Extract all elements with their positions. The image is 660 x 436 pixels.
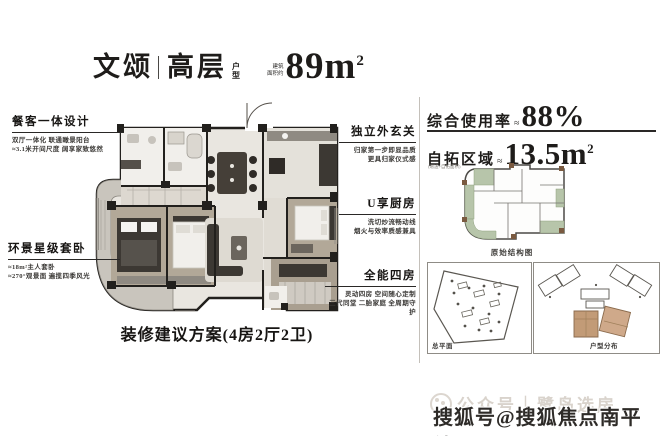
- annotation-line: 灵动四房 空间随心定制: [325, 290, 416, 299]
- annotation-rule: [8, 259, 120, 260]
- floorplan-poster: 文颂 高层 户 型 建筑 面积约 89m2: [0, 0, 660, 436]
- area-superscript: 2: [356, 53, 365, 69]
- unit-type-tag-line1: 户: [232, 62, 240, 71]
- annotation-dining-living: 餐客一体设计 双厅一体化 联通瞰景阳台 ≈3.1米开间尺度 阔享家致悠然: [12, 113, 124, 154]
- annotation-master-suite: 环景星级套卧 ≈18m²主人套卧 ≈270°观景面 遍揽四季风光: [8, 240, 120, 281]
- title-divider: [158, 56, 159, 79]
- annotation-kitchen: U享厨房 洗切炒流畅动线 烟火与效率质感兼具: [339, 195, 416, 236]
- structure-caption: 原始结构图: [452, 247, 572, 258]
- page-title: 文颂 高层 户 型 建筑 面积约 89m2: [93, 46, 365, 82]
- annotation-line: ≈270°观景面 遍揽四季风光: [8, 272, 120, 281]
- stat-underline: [427, 130, 656, 132]
- siteplan-box: 总平面: [427, 262, 532, 354]
- annotation-rule: [339, 214, 416, 215]
- annotation-title: 餐客一体设计: [12, 113, 124, 129]
- usage-rate-label: 综合使用率: [427, 110, 512, 131]
- annotation-rule: [12, 132, 124, 133]
- title-sub: 高层: [167, 52, 227, 82]
- annotation-title: 全能四房: [325, 267, 416, 283]
- annotation-line: 洗切炒流畅动线: [339, 218, 416, 227]
- distribution-box: 户型分布: [533, 262, 660, 354]
- annotation-title: 环景星级套卧: [8, 240, 120, 256]
- annotation-line: 烟火与效率质感兼具: [339, 227, 416, 236]
- annotation-rule: [339, 142, 416, 143]
- title-main: 文颂: [93, 52, 153, 82]
- panel-divider: [419, 97, 420, 363]
- approx-sign: ≈: [514, 118, 520, 129]
- distribution-diagram: [534, 263, 657, 351]
- annotation-four-rooms: 全能四房 灵动四房 空间随心定制 三代同堂 二胎家庭 全周期守护: [325, 267, 416, 317]
- distribution-label: 户型分布: [590, 340, 618, 350]
- annotation-line: 更具归家仪式感: [339, 155, 416, 164]
- structure-diagram: [452, 163, 572, 247]
- area-value: 89m2: [286, 46, 365, 82]
- unit-type-tag-line2: 型: [232, 71, 240, 80]
- annotation-foyer: 独立外玄关 归家第一步即显品质 更具归家仪式感: [339, 123, 416, 164]
- unit-type-tag: 户 型: [232, 62, 240, 80]
- annotation-line: 归家第一步即显品质: [339, 146, 416, 155]
- annotation-line: ≈3.1米开间尺度 阔享家致悠然: [12, 145, 124, 154]
- annotation-line: 双厅一体化 联通瞰景阳台: [12, 136, 124, 145]
- usage-rate-stat: 综合使用率 ≈ 88%: [427, 98, 585, 134]
- siteplan-diagram: [428, 263, 529, 351]
- area-prefix: 建筑 面积约: [267, 64, 284, 77]
- annotation-title: U享厨房: [339, 195, 416, 211]
- annotation-line: ≈18m²主人套卧: [8, 263, 120, 272]
- area-number: 89m: [286, 46, 357, 87]
- annotation-line: 三代同堂 二胎家庭 全周期守护: [325, 299, 416, 317]
- expansion-superscript: 2: [587, 141, 594, 156]
- plan-caption: 装修建议方案(4房2厅2卫): [108, 321, 326, 345]
- usage-rate-value: 88%: [522, 98, 586, 134]
- area-prefix-line2: 面积约: [267, 71, 284, 78]
- siteplan-label: 总平面: [432, 340, 453, 350]
- watermark-text: 搜狐号@搜狐焦点南平站: [433, 401, 660, 436]
- annotation-title: 独立外玄关: [339, 123, 416, 139]
- annotation-rule: [325, 286, 416, 287]
